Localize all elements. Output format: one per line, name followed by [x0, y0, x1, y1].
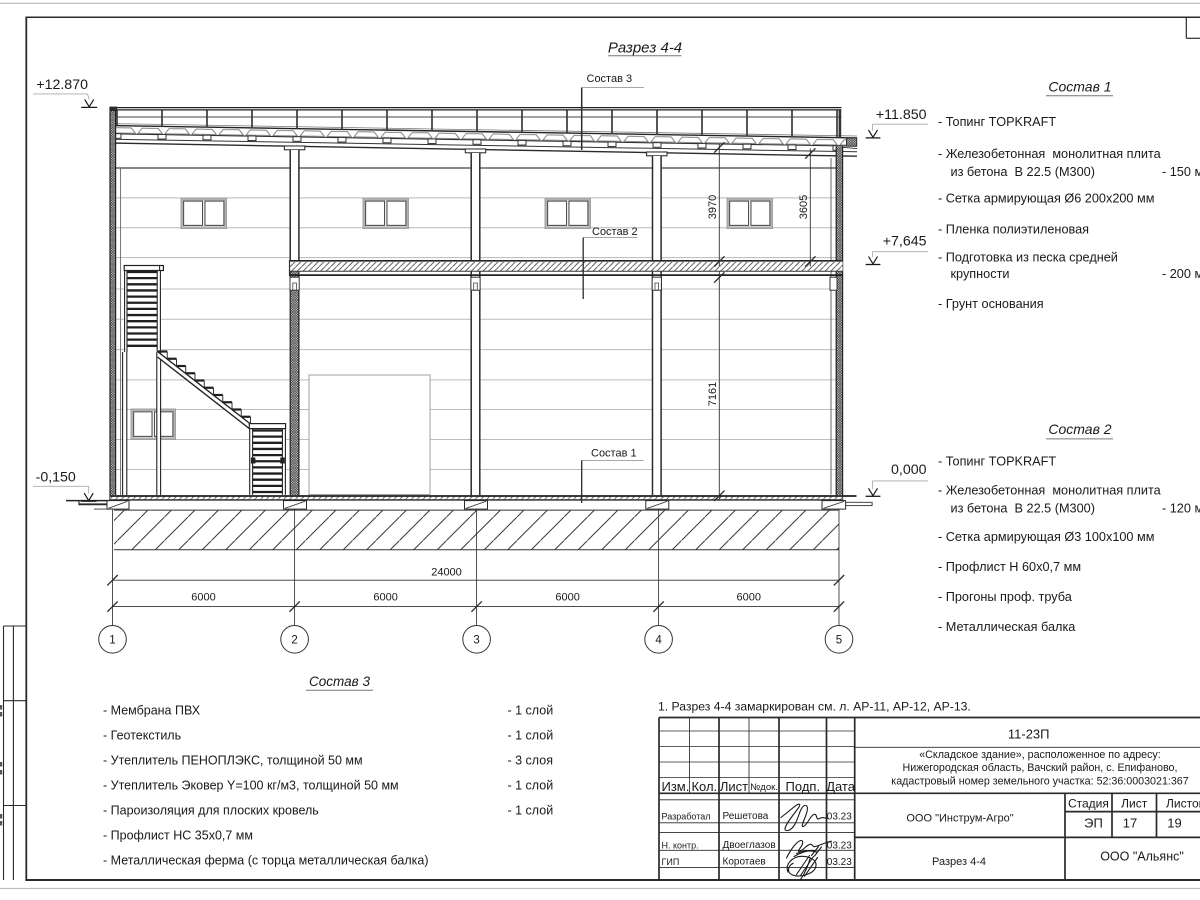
- svg-text:- Топинг TOPKRAFT: - Топинг TOPKRAFT: [938, 115, 1056, 129]
- svg-text:из бетона В 22.5 (М300): из бетона В 22.5 (М300): [951, 502, 1095, 516]
- svg-text:- Металлическая ферма (с торца: - Металлическая ферма (с торца металличе…: [103, 854, 429, 868]
- svg-text:крупности: крупности: [951, 267, 1010, 281]
- svg-text:- Геотекстиль: - Геотекстиль: [103, 729, 181, 743]
- svg-text:- Сетка армирующая Ø3 100х100: - Сетка армирующая Ø3 100х100 мм: [938, 530, 1154, 544]
- svg-text:Состав 3: Состав 3: [309, 674, 370, 689]
- svg-text:- 3 слоя: - 3 слоя: [508, 754, 553, 768]
- svg-text:- Мембрана ПВХ: - Мембрана ПВХ: [103, 704, 201, 718]
- svg-text:6000: 6000: [191, 592, 215, 604]
- svg-text:+12.870: +12.870: [36, 77, 88, 93]
- svg-text:Разрез 4-4: Разрез 4-4: [608, 40, 682, 57]
- svg-text:Стадия: Стадия: [1068, 797, 1109, 811]
- svg-text:3605: 3605: [798, 195, 810, 219]
- svg-text:19: 19: [1167, 816, 1181, 831]
- svg-text:17: 17: [1123, 816, 1137, 831]
- svg-text:1. Разрез 4-4 замаркирован см.: 1. Разрез 4-4 замаркирован см. л. АР-11,…: [658, 700, 971, 714]
- svg-text:- Грунт основания: - Грунт основания: [938, 297, 1044, 311]
- svg-text:- Сетка армирующая Ø6 200х200: - Сетка армирующая Ø6 200х200 мм: [938, 192, 1154, 206]
- svg-text:6000: 6000: [373, 592, 397, 604]
- svg-text:11-23П: 11-23П: [1008, 727, 1050, 742]
- svg-text:Листов: Листов: [1166, 797, 1200, 811]
- svg-text:2: 2: [291, 635, 297, 647]
- svg-text:6000: 6000: [737, 592, 761, 604]
- svg-text:Лист: Лист: [1121, 797, 1148, 811]
- svg-text:- Железобетонная монолитная п: - Железобетонная монолитная плита: [938, 484, 1162, 498]
- svg-text:- Профлист Н 60х0,7 мм: - Профлист Н 60х0,7 мм: [938, 560, 1081, 574]
- svg-text:Н. контр.: Н. контр.: [662, 841, 699, 851]
- svg-text:Подп.: Подп.: [786, 779, 821, 794]
- svg-text:- Прогоны проф. труба: - Прогоны проф. труба: [938, 590, 1073, 604]
- svg-text:03.23: 03.23: [827, 857, 852, 868]
- svg-text:- 1 слой: - 1 слой: [508, 704, 554, 718]
- svg-text:-0,150: -0,150: [36, 469, 76, 485]
- svg-text:Кол.: Кол.: [691, 779, 717, 794]
- svg-text:ООО "Альянс": ООО "Альянс": [1100, 849, 1184, 863]
- svg-text:- Пленка полиэтиленовая: - Пленка полиэтиленовая: [938, 222, 1089, 236]
- svg-text:ООО "Инструм-Агро": ООО "Инструм-Агро": [906, 812, 1013, 824]
- svg-text:Разработал: Разработал: [662, 812, 711, 822]
- svg-text:03.23: 03.23: [827, 812, 852, 823]
- svg-text:- Утеплитель ПЕНОПЛЭКС, толщин: - Утеплитель ПЕНОПЛЭКС, толщиной 50 мм: [103, 754, 363, 768]
- svg-text:3: 3: [473, 635, 479, 647]
- svg-text:- 120 мм: - 120 мм: [1162, 502, 1200, 516]
- svg-text:Лист: Лист: [720, 779, 748, 794]
- svg-text:- Топинг TOPKRAFT: - Топинг TOPKRAFT: [938, 454, 1056, 468]
- svg-text:- Пароизоляция для плоских кро: - Пароизоляция для плоских кровель: [103, 804, 319, 818]
- svg-text:0,000: 0,000: [891, 462, 927, 478]
- svg-text:Двоеглазов: Двоеглазов: [723, 840, 776, 851]
- svg-text:- 200 мм: - 200 мм: [1162, 267, 1200, 281]
- svg-text:Коротаев: Коротаев: [723, 856, 766, 867]
- svg-text:6000: 6000: [555, 592, 579, 604]
- svg-text:Нижегородская область, Вачский: Нижегородская область, Вачский район, с.…: [903, 762, 1178, 774]
- svg-text:- 1 слой: - 1 слой: [508, 804, 554, 818]
- svg-text:- 1 слой: - 1 слой: [508, 779, 554, 793]
- svg-text:ЭП: ЭП: [1084, 816, 1103, 831]
- svg-text:4: 4: [655, 635, 662, 647]
- svg-text:- Металлическая балка: - Металлическая балка: [938, 620, 1076, 634]
- svg-text:3970: 3970: [707, 195, 719, 219]
- svg-text:из бетона В 22.5 (М300): из бетона В 22.5 (М300): [951, 165, 1095, 179]
- svg-text:- 1 слой: - 1 слой: [508, 729, 554, 743]
- svg-text:Состав 2: Состав 2: [592, 226, 638, 238]
- svg-text:- Утеплитель Эковер Y=100 кг/м: - Утеплитель Эковер Y=100 кг/м3, толщино…: [103, 779, 399, 793]
- svg-text:- Профлист НС 35х0,7 мм: - Профлист НС 35х0,7 мм: [103, 829, 253, 843]
- svg-text:Состав 1: Состав 1: [591, 448, 637, 460]
- svg-text:7161: 7161: [707, 382, 719, 406]
- svg-text:- Железобетонная монолитная п: - Железобетонная монолитная плита: [938, 147, 1162, 161]
- svg-text:Разрез 4-4: Разрез 4-4: [932, 856, 986, 868]
- svg-text:«Складское здание», расположен: «Складское здание», расположенное по адр…: [919, 749, 1161, 761]
- svg-text:Решетова: Решетова: [723, 811, 769, 822]
- svg-text:5: 5: [836, 635, 842, 647]
- svg-text:+7,645: +7,645: [883, 233, 927, 249]
- svg-text:24000: 24000: [431, 567, 462, 579]
- svg-text:№док.: №док.: [750, 782, 778, 793]
- svg-text:- 150 мм: - 150 мм: [1162, 165, 1200, 179]
- svg-text:Изм.: Изм.: [662, 779, 690, 794]
- svg-text:Состав 2: Состав 2: [1048, 421, 1111, 437]
- svg-text:+11.850: +11.850: [876, 107, 927, 123]
- svg-text:кадастровый номер земельного у: кадастровый номер земельного участка: 52…: [891, 776, 1188, 788]
- svg-text:Дата: Дата: [826, 779, 856, 794]
- svg-text:1: 1: [109, 635, 115, 647]
- svg-text:03.23: 03.23: [827, 841, 852, 852]
- svg-text:- Подготовка из песка средней: - Подготовка из песка средней: [938, 251, 1118, 265]
- svg-text:Состав 1: Состав 1: [1048, 79, 1111, 95]
- svg-text:Состав 3: Состав 3: [587, 73, 633, 85]
- svg-text:ГИП: ГИП: [662, 857, 680, 867]
